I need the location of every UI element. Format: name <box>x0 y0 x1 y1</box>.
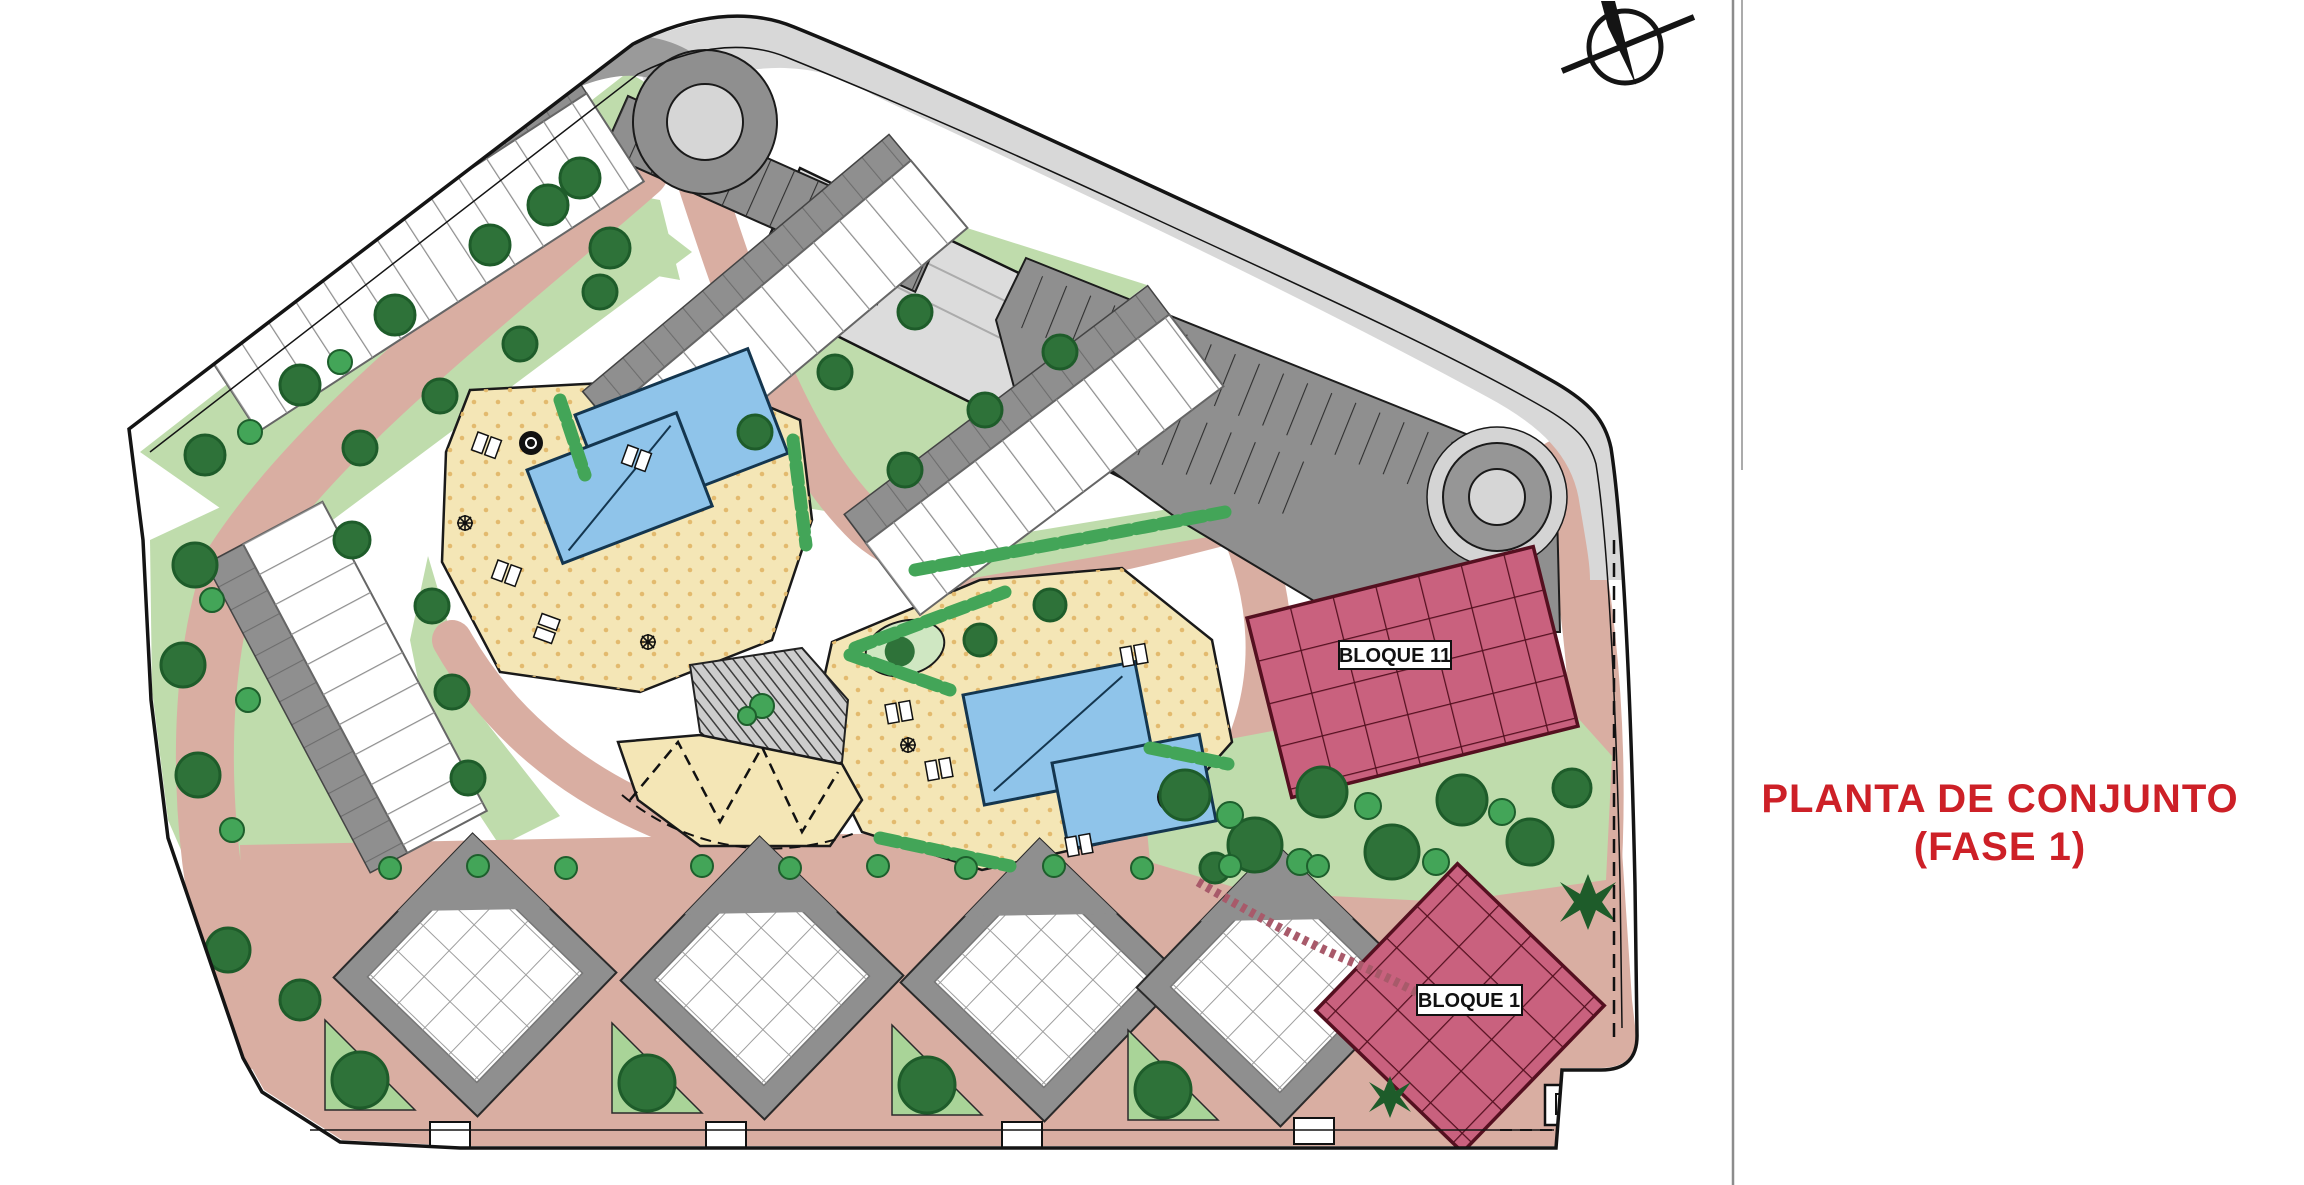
plan-title: PLANTA DE CONJUNTO (FASE 1) <box>1761 777 2238 869</box>
plan-title-line2: (FASE 1) <box>1914 825 2086 869</box>
bloque-1-label: BLOQUE 1 <box>1417 985 1522 1015</box>
roundabout-northwest <box>633 50 777 194</box>
roundabout-east <box>1427 427 1567 567</box>
bloque-11-label: BLOQUE 11 <box>1339 641 1451 669</box>
plan-title-line1: PLANTA DE CONJUNTO <box>1761 777 2238 821</box>
north-arrow-icon <box>1562 1 1694 85</box>
utility-pad <box>1545 1085 1587 1125</box>
site-plan <box>129 16 1637 1152</box>
site-plan-sheet: BLOQUE 11 BLOQUE 1 PLANTA DE CONJUNTO (F… <box>0 0 2304 1185</box>
panel-divider <box>1733 0 1742 1185</box>
bloque-1-label-text: BLOQUE 1 <box>1418 990 1520 1012</box>
bloque-11-label-text: BLOQUE 11 <box>1339 645 1451 667</box>
site-plan-canvas: BLOQUE 11 BLOQUE 1 PLANTA DE CONJUNTO (F… <box>0 0 2304 1185</box>
